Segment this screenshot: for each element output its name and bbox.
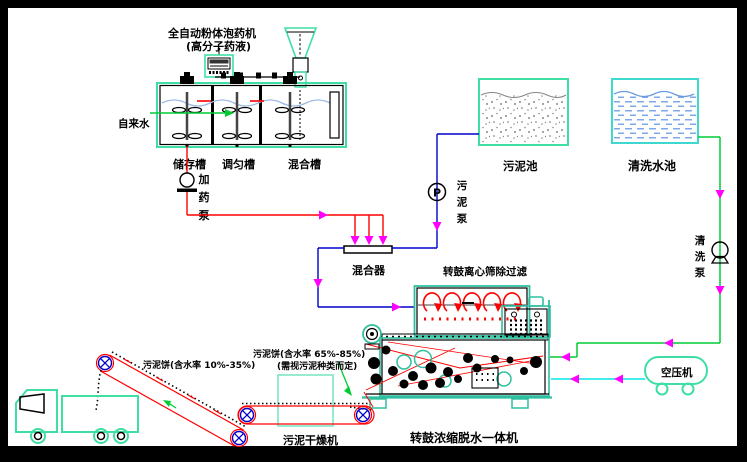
sludge-pool-label: 污泥池: [503, 159, 538, 173]
sludge-pump-label: 污泥泵: [457, 179, 468, 225]
tank1-label: 储存槽: [173, 157, 206, 171]
process-flow-diagram: 全自动粉体泡药机 (高分子药液): [0, 0, 747, 462]
drum-screen-label: 转鼓离心筛除过滤: [443, 265, 527, 278]
cake-wet-label: 污泥饼(含水率 65%-85%): [253, 348, 365, 360]
feeder-title: 全自动粉体泡药机: [167, 26, 256, 40]
mixer-label: 混合器: [352, 263, 386, 277]
dryer-label: 污泥干燥机: [283, 433, 338, 447]
air-compressor-label: 空压机: [661, 366, 693, 379]
wash-pool-label: 清洗水池: [628, 158, 676, 173]
dewaterer-label: 转鼓浓缩脱水一体机: [410, 430, 518, 445]
wash-pump-label: 清洗泵: [695, 234, 706, 279]
cake-wet-note: (需视污泥种类而定): [277, 360, 357, 372]
diagram-frame: 全自动粉体泡药机 (高分子药液): [0, 0, 747, 462]
pump-p-letter: P: [433, 187, 441, 200]
tank3-label: 混合槽: [288, 157, 321, 171]
tap-water-label: 自来水: [118, 117, 150, 130]
cake-dry-label: 污泥饼(含水率 10%-35%): [143, 359, 255, 371]
tank2-label: 调匀槽: [222, 157, 255, 171]
